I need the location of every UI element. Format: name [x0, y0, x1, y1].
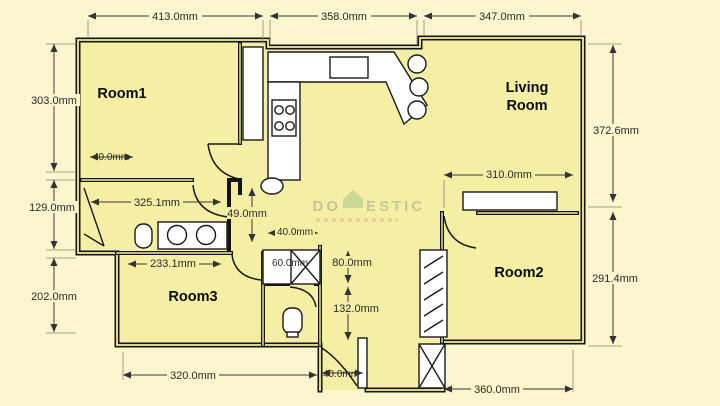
entry-column: [419, 344, 445, 388]
room2-label: Room2: [494, 265, 543, 281]
entry-door-leaf: [358, 338, 367, 388]
dim-shelf-width: 310.0mm: [486, 169, 532, 181]
basin: [197, 226, 216, 245]
dim-room1-door: 40.0mm: [93, 152, 129, 163]
wash-basin: [261, 178, 283, 194]
sideboard: [463, 192, 557, 210]
room3-label: Room3: [168, 289, 217, 305]
dim-room3-bottom: 320.0mm: [170, 370, 216, 382]
kitchen-sink: [330, 57, 368, 78]
room1-label: Room1: [97, 86, 146, 102]
dim-bottom-right: 360.0mm: [474, 384, 520, 396]
dim-closet-left: 60.0mm: [272, 258, 308, 269]
burner-icon: [275, 106, 283, 114]
dim-left-mid: 129.0mm: [29, 202, 75, 214]
basin: [168, 226, 187, 245]
burner-icon: [275, 122, 283, 130]
stove: [272, 100, 296, 136]
wc-toilet: [283, 308, 302, 334]
bar-stool: [410, 78, 428, 96]
fridge-counter: [243, 47, 263, 140]
burner-icon: [286, 122, 294, 130]
watermark-text-prefix: DO: [313, 198, 342, 215]
wc: [283, 308, 302, 337]
dim-top-right: 347.0mm: [479, 11, 525, 23]
living-room-label-line1: Living: [506, 80, 549, 96]
dim-closet-height: 80.0mm: [332, 257, 372, 269]
wc-toilet-base: [287, 332, 298, 337]
dim-bath-width: 325.1mm: [134, 197, 180, 209]
dim-hall-height: 49.0mm: [227, 208, 267, 220]
wardrobe: [420, 250, 447, 337]
living-room-label-line2: Room: [506, 98, 547, 114]
dim-left-upper: 303.0mm: [31, 95, 77, 107]
watermark-text-suffix: ESTIC: [366, 198, 425, 215]
dim-closet-top: 40.0mm: [277, 227, 313, 238]
floor-plan-page: 413.0mm 358.0mm 347.0mm 303.0mm 129.0mm …: [0, 0, 720, 406]
dim-room3-top: 233.1mm: [150, 258, 196, 270]
floor-plan-canvas: 413.0mm 358.0mm 347.0mm 303.0mm 129.0mm …: [0, 0, 720, 406]
bar-stool: [408, 55, 426, 73]
toilet: [135, 224, 152, 248]
dim-right-upper: 372.6mm: [593, 125, 639, 137]
dim-entry-width: 40.0mm: [323, 369, 359, 380]
dim-right-lower: 291.4mm: [592, 273, 638, 285]
burner-icon: [286, 106, 294, 114]
dim-top-mid: 358.0mm: [321, 11, 367, 23]
bar-stool: [408, 101, 426, 119]
dim-wc-height: 132.0mm: [333, 303, 379, 315]
dim-top-left: 413.0mm: [152, 11, 198, 23]
dim-left-lower: 202.0mm: [31, 291, 77, 303]
